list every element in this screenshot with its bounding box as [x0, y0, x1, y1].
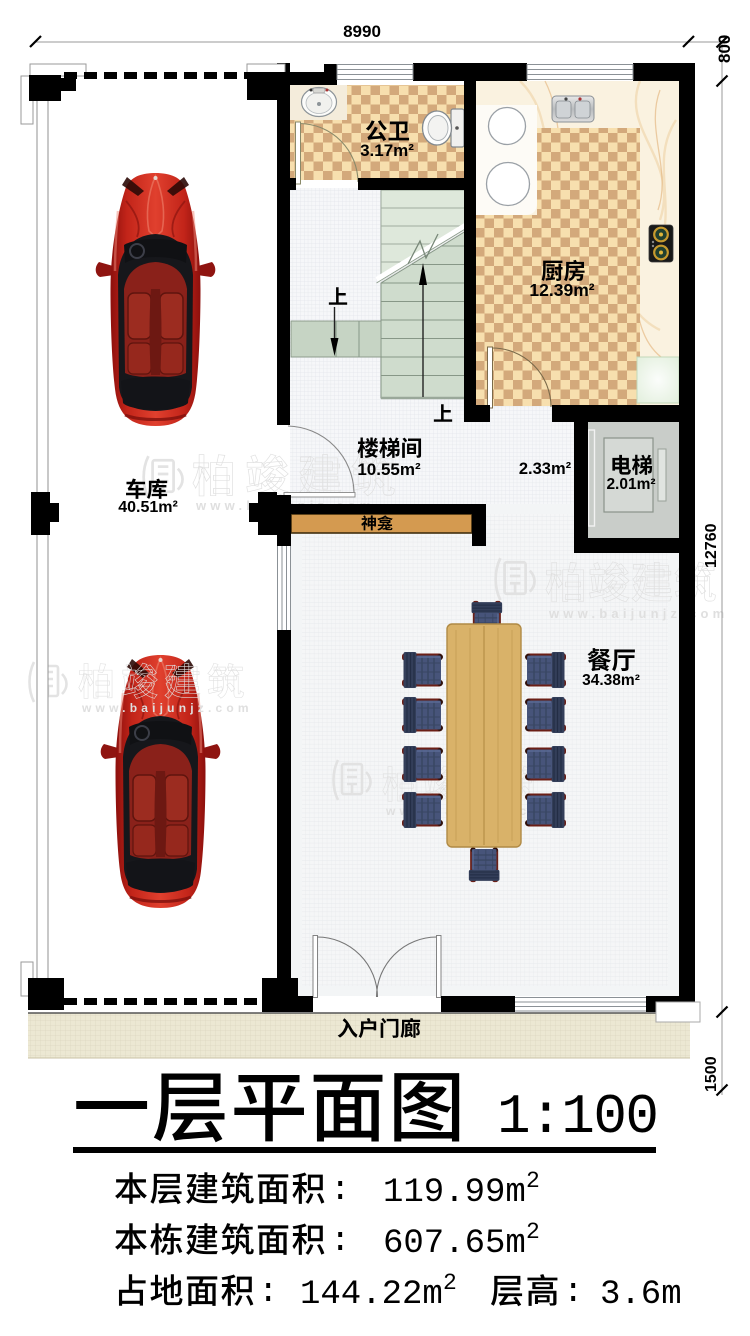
svg-text::: : — [258, 1274, 278, 1312]
svg-text:10.55m²: 10.55m² — [357, 460, 421, 479]
svg-text:3.17m²: 3.17m² — [360, 141, 414, 160]
svg-text:www.baijunjz.com: www.baijunjz.com — [548, 606, 728, 621]
svg-text::: : — [563, 1274, 583, 1312]
svg-text:800: 800 — [715, 35, 734, 63]
svg-text:1500: 1500 — [703, 1056, 720, 1092]
svg-text:8990: 8990 — [343, 22, 381, 41]
svg-text:12.39m²: 12.39m² — [529, 280, 594, 300]
svg-text::: : — [330, 1172, 350, 1210]
svg-text:www.baijunjz.com: www.baijunjz.com — [81, 701, 253, 715]
svg-text::: : — [330, 1223, 350, 1261]
svg-text:2.33m²: 2.33m² — [519, 460, 572, 478]
svg-text:34.38m²: 34.38m² — [582, 672, 640, 689]
svg-text:1:100: 1:100 — [497, 1085, 658, 1149]
svg-text:12760: 12760 — [703, 523, 720, 568]
svg-text:40.51m²: 40.51m² — [118, 499, 178, 516]
svg-text:2: 2 — [443, 1270, 457, 1296]
svg-text:2: 2 — [526, 1168, 540, 1194]
svg-text:607.65m: 607.65m — [383, 1225, 526, 1263]
svg-text:2.01m²: 2.01m² — [606, 476, 655, 493]
svg-text:2: 2 — [526, 1219, 540, 1245]
svg-text:144.22m: 144.22m — [300, 1276, 443, 1314]
svg-text:3.6m: 3.6m — [600, 1276, 682, 1314]
svg-text:119.99m: 119.99m — [383, 1174, 526, 1212]
